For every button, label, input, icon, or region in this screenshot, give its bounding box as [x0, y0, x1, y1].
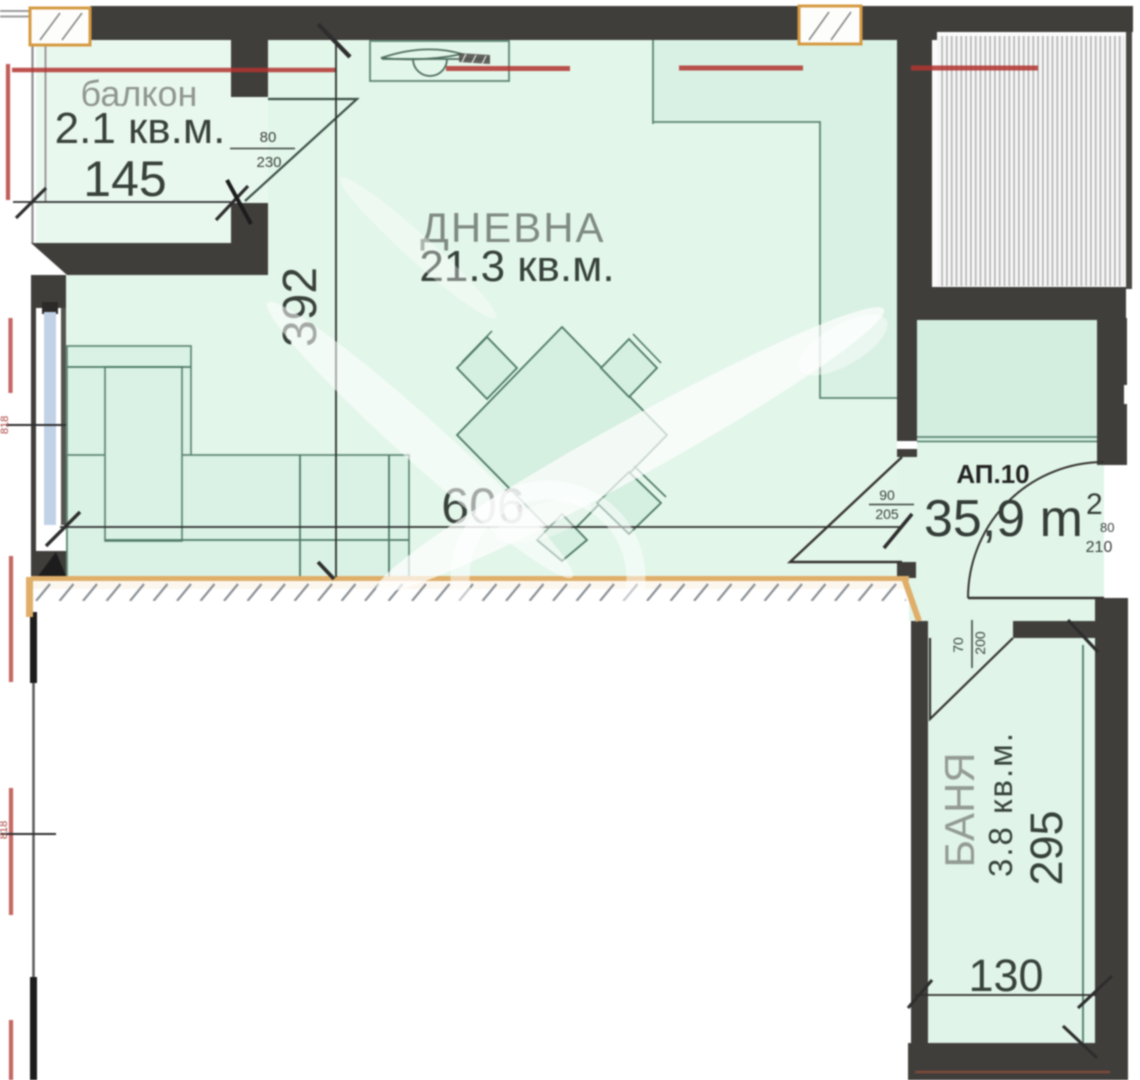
svg-text:295: 295: [1021, 810, 1072, 885]
svg-text:80: 80: [260, 129, 277, 146]
svg-text:3.8 кв.м.: 3.8 кв.м.: [982, 731, 1019, 877]
svg-text:818: 818: [0, 821, 10, 839]
svg-text:818: 818: [0, 416, 11, 434]
svg-text:205: 205: [875, 506, 899, 522]
svg-text:145: 145: [83, 151, 166, 207]
svg-text:200: 200: [972, 631, 988, 655]
svg-text:90: 90: [879, 487, 895, 503]
svg-text:80: 80: [1100, 520, 1114, 535]
svg-text:2.1 кв.м.: 2.1 кв.м.: [55, 104, 226, 153]
svg-text:70: 70: [950, 637, 966, 653]
svg-text:2: 2: [1086, 488, 1103, 521]
svg-text:210: 210: [1086, 539, 1113, 556]
svg-text:АП.10: АП.10: [956, 459, 1029, 489]
svg-text:130: 130: [968, 950, 1043, 1001]
svg-text:35,9 m: 35,9 m: [924, 490, 1083, 548]
svg-text:БАНЯ: БАНЯ: [936, 752, 983, 867]
svg-text:230: 230: [256, 154, 281, 171]
